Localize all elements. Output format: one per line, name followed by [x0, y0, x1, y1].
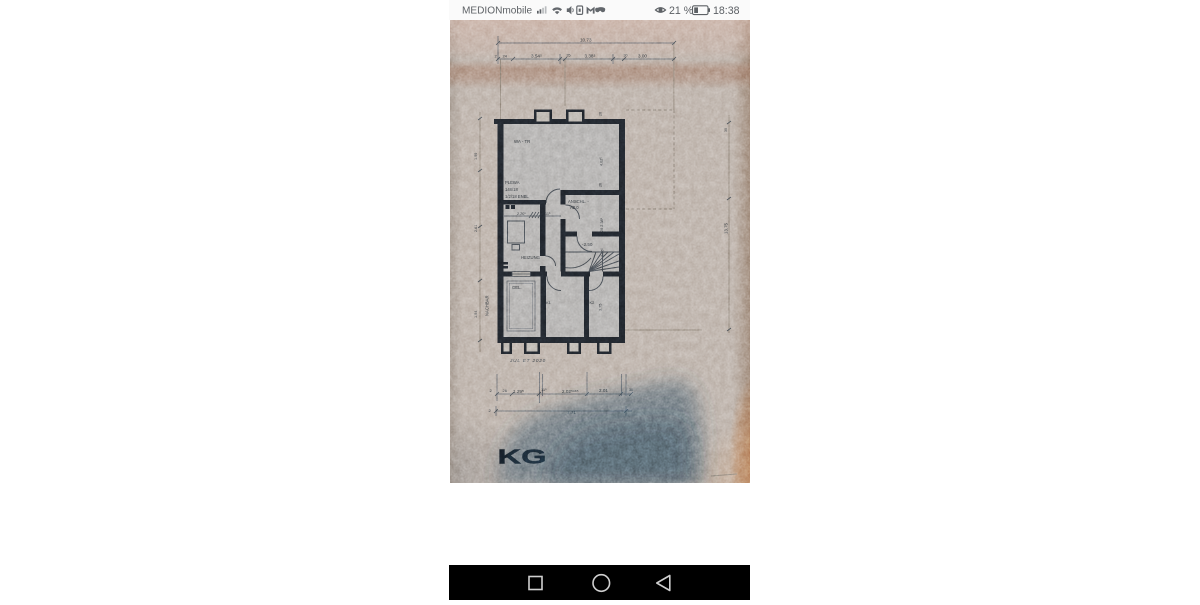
svg-text:MEDIONmobile: MEDIONmobile	[462, 6, 532, 17]
svg-text:18:38: 18:38	[713, 5, 740, 17]
svg-text:21 %: 21 %	[669, 5, 694, 17]
